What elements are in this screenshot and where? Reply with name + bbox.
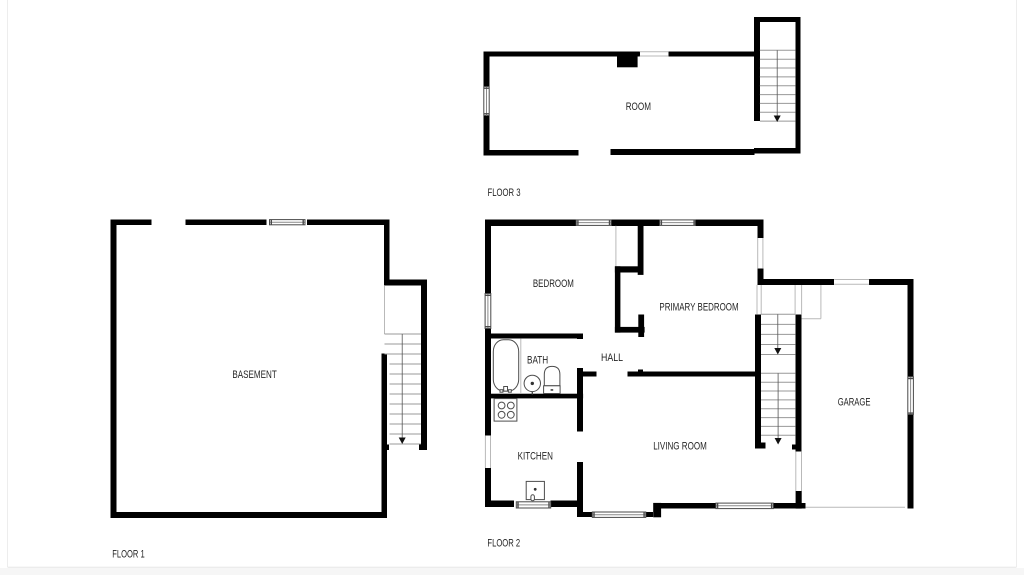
svg-text:FLOOR 1: FLOOR 1 bbox=[112, 549, 144, 561]
svg-text:HALL: HALL bbox=[601, 352, 623, 364]
svg-text:LIVING ROOM: LIVING ROOM bbox=[653, 441, 707, 453]
svg-text:BATH: BATH bbox=[527, 354, 548, 366]
svg-text:ROOM: ROOM bbox=[626, 101, 651, 113]
svg-text:BEDROOM: BEDROOM bbox=[533, 278, 574, 290]
svg-text:PRIMARY BEDROOM: PRIMARY BEDROOM bbox=[659, 302, 738, 314]
svg-text:BASEMENT: BASEMENT bbox=[232, 369, 277, 381]
svg-text:FLOOR 2: FLOOR 2 bbox=[487, 537, 520, 549]
svg-text:FLOOR 3: FLOOR 3 bbox=[488, 187, 521, 199]
svg-text:GARAGE: GARAGE bbox=[838, 397, 871, 409]
svg-text:KITCHEN: KITCHEN bbox=[518, 450, 553, 462]
